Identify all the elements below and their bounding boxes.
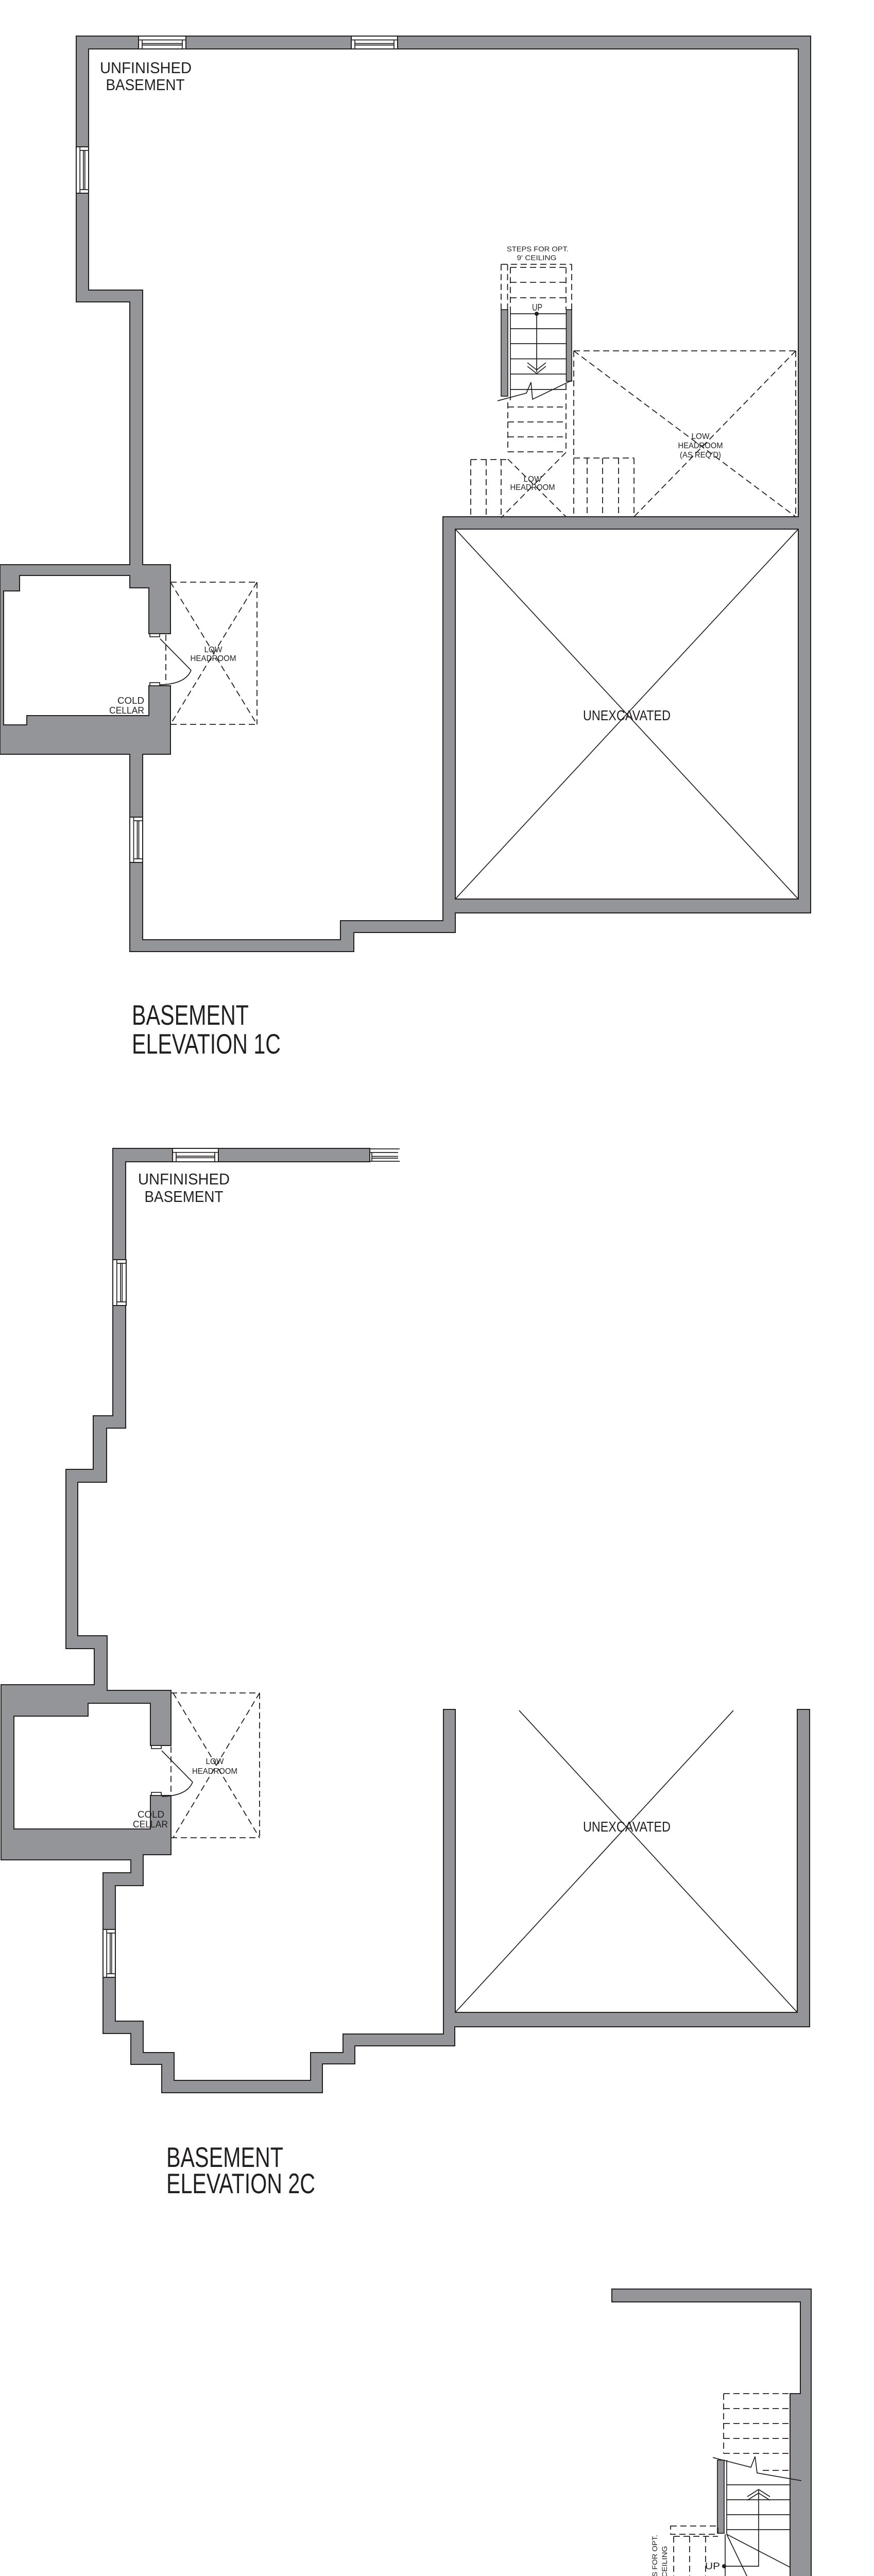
svg-text:CELLAR: CELLAR xyxy=(109,705,144,716)
svg-text:COLD: COLD xyxy=(138,1809,164,1820)
svg-text:HEADROOM: HEADROOM xyxy=(192,1767,237,1776)
svg-text:ELEVATION 1C: ELEVATION 1C xyxy=(132,1028,281,1060)
svg-text:9' CEILING: 9' CEILING xyxy=(517,253,557,262)
svg-text:UNFINISHED: UNFINISHED xyxy=(138,1170,230,1188)
svg-text:BASEMENT: BASEMENT xyxy=(132,999,249,1031)
svg-text:LOW: LOW xyxy=(206,1757,225,1766)
svg-text:9' CEILING: 9' CEILING xyxy=(660,2546,669,2576)
svg-text:BASEMENT: BASEMENT xyxy=(106,76,185,94)
svg-text:UNEXCAVATED: UNEXCAVATED xyxy=(583,707,671,723)
svg-text:(AS REQ’D): (AS REQ’D) xyxy=(680,451,721,460)
svg-text:UP: UP xyxy=(705,2561,720,2571)
svg-text:STEPS FOR OPT.: STEPS FOR OPT. xyxy=(507,245,569,253)
svg-text:LOW: LOW xyxy=(524,475,542,484)
svg-text:STEPS FOR OPT.: STEPS FOR OPT. xyxy=(650,2535,659,2576)
svg-text:UP: UP xyxy=(532,302,542,313)
svg-text:COLD: COLD xyxy=(117,696,144,706)
svg-text:ELEVATION 2C: ELEVATION 2C xyxy=(166,2167,315,2199)
svg-text:HEADROOM: HEADROOM xyxy=(191,654,236,663)
svg-text:BASEMENT: BASEMENT xyxy=(145,1188,224,1206)
svg-text:LOW: LOW xyxy=(204,646,223,654)
svg-text:LOW: LOW xyxy=(692,432,710,441)
svg-text:UNFINISHED: UNFINISHED xyxy=(100,59,192,77)
svg-text:HEADROOM: HEADROOM xyxy=(510,483,555,492)
svg-text:UNEXCAVATED: UNEXCAVATED xyxy=(583,1819,671,1835)
svg-text:HEADROOM: HEADROOM xyxy=(678,442,723,450)
svg-text:CELLAR: CELLAR xyxy=(133,1819,168,1829)
